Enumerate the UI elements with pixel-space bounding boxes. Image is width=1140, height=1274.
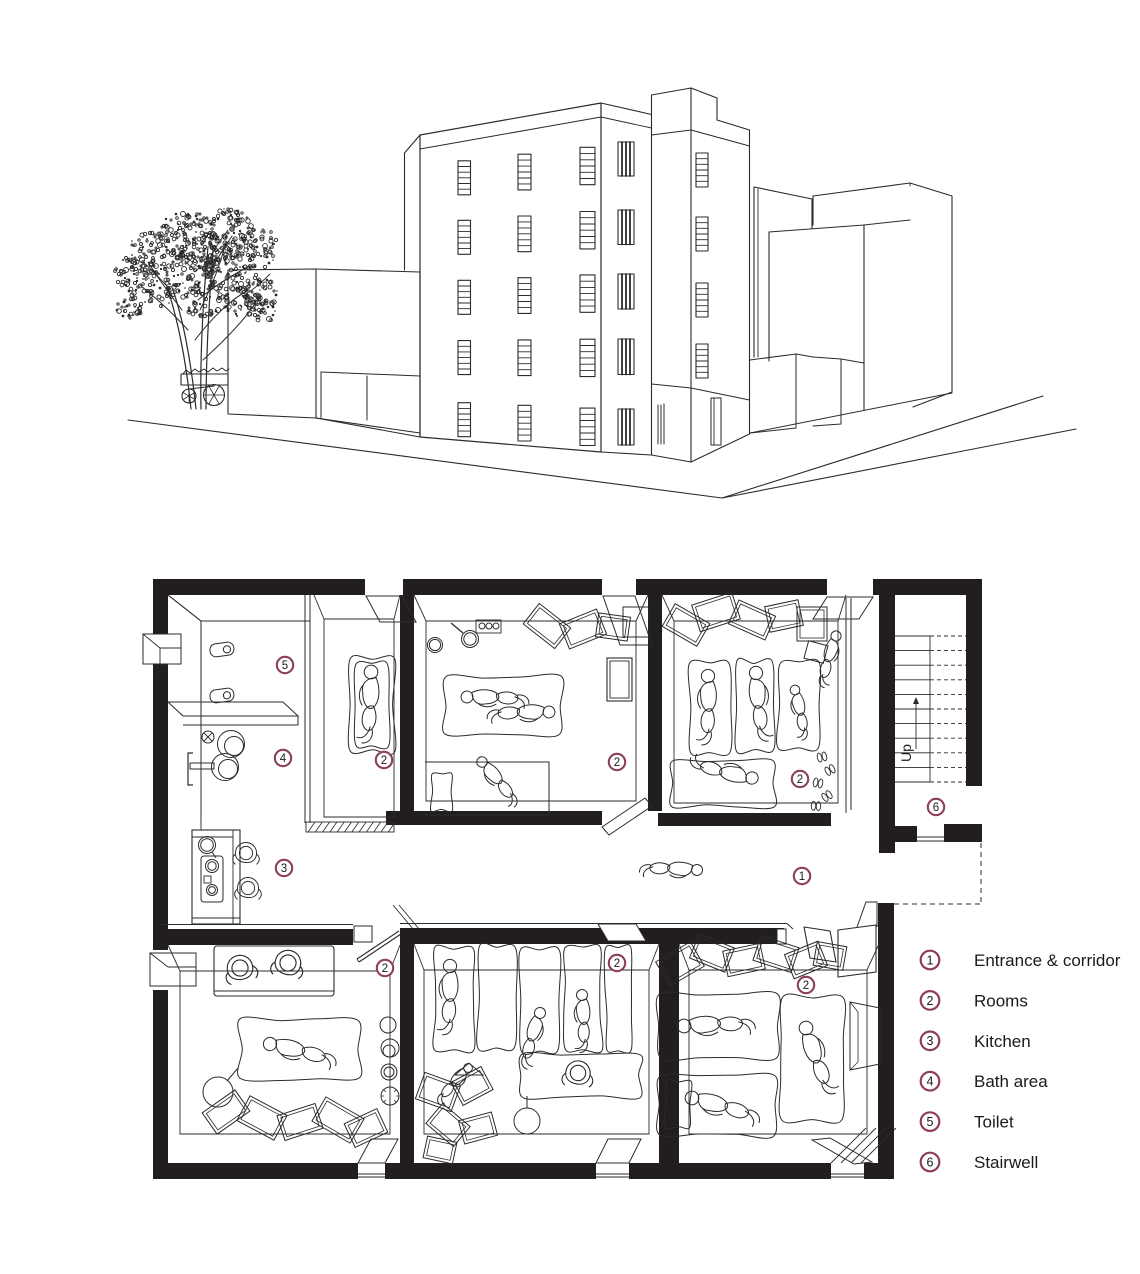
svg-text:6: 6 — [927, 1155, 934, 1169]
svg-text:Bath area: Bath area — [974, 1072, 1048, 1091]
svg-text:3: 3 — [281, 863, 287, 875]
svg-text:Kitchen: Kitchen — [974, 1032, 1031, 1051]
svg-text:2: 2 — [614, 757, 620, 769]
svg-text:4: 4 — [927, 1075, 934, 1089]
svg-text:3: 3 — [927, 1034, 934, 1048]
svg-text:2: 2 — [381, 755, 387, 767]
svg-text:Toilet: Toilet — [974, 1113, 1014, 1132]
svg-text:5: 5 — [927, 1115, 934, 1129]
svg-text:5: 5 — [282, 660, 288, 672]
svg-text:2: 2 — [614, 958, 620, 970]
svg-text:2: 2 — [382, 963, 388, 975]
svg-text:2: 2 — [927, 994, 934, 1008]
svg-text:1: 1 — [927, 953, 934, 967]
svg-text:Entrance & corridor: Entrance & corridor — [974, 951, 1121, 970]
svg-text:2: 2 — [797, 774, 803, 786]
svg-text:Stairwell: Stairwell — [974, 1153, 1038, 1172]
svg-text:2: 2 — [803, 980, 809, 992]
svg-text:Rooms: Rooms — [974, 991, 1028, 1010]
svg-text:Up: Up — [898, 744, 914, 762]
svg-text:4: 4 — [280, 753, 287, 765]
svg-text:1: 1 — [799, 871, 805, 883]
svg-text:6: 6 — [933, 802, 939, 814]
